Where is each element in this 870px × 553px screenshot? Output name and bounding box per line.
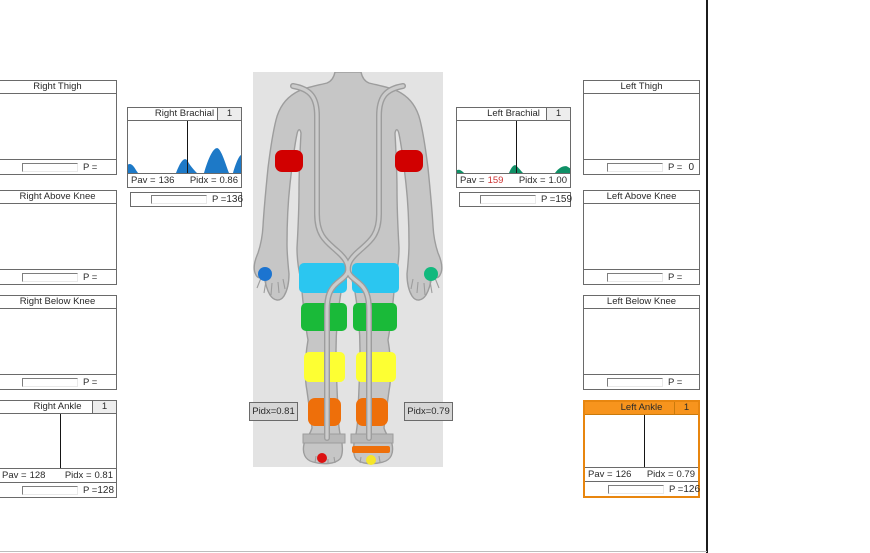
panel-title-label: Left Brachial (487, 108, 540, 119)
panel-title: Left Thigh (584, 81, 699, 94)
panel-title-label: Right Brachial (155, 108, 214, 119)
window-split-divider[interactable] (706, 0, 708, 553)
pressure-label: P = (83, 272, 97, 283)
pressure-label: P = (668, 272, 682, 283)
stats-row: Pav =126 Pidx =0.79 (585, 467, 698, 481)
left-hand-marker-dot[interactable] (424, 267, 438, 281)
pressure-label: P = (83, 377, 97, 388)
stats-row: Pav =136 Pidx =0.86 (128, 173, 241, 187)
pressure-bar (607, 378, 663, 387)
panel-left-brachial[interactable]: Left Brachial 1 Pav =159 Pidx =1.00 (456, 107, 571, 188)
left-below-knee-cuff[interactable] (356, 352, 396, 382)
doppler-waveform (457, 121, 570, 173)
stats-row: Pav =159 Pidx =1.00 (457, 173, 570, 187)
panel-title: Left Above Knee (584, 191, 699, 204)
panel-title: Left Brachial 1 (457, 108, 570, 121)
panel-left-below-knee[interactable]: Left Below Knee P = (583, 295, 700, 390)
pressure-bar (22, 163, 78, 172)
panel-title-label: Right Ankle (33, 401, 81, 412)
pressure-bar (22, 273, 78, 282)
stats-row: Pav =128 Pidx =0.81 (0, 468, 116, 482)
left-brachial-pressure-box: P = 159 (459, 192, 571, 207)
pav-label: Pav = (460, 175, 485, 186)
waveform-area (0, 309, 116, 374)
pressure-value: 128 (97, 485, 116, 496)
bottom-edge-line (0, 551, 707, 552)
pidx-label: Pidx = (519, 175, 546, 186)
pressure-value: 159 (555, 194, 574, 205)
pidx-value: 0.81 (95, 470, 114, 481)
panel-right-below-knee[interactable]: Right Below Knee P = (0, 295, 117, 390)
waveform-area (585, 415, 698, 467)
pav-value: 159 (488, 175, 504, 186)
measurement-count-badge: 1 (546, 108, 570, 120)
pressure-row: P = (0, 159, 116, 174)
left-ankle-pidx-tag: Pidx=0.79 (404, 402, 453, 421)
pav-label: Pav = (2, 470, 27, 481)
panel-title-label: Left Ankle (621, 402, 663, 413)
pressure-label: P = (541, 194, 555, 205)
pav-value: 136 (159, 175, 175, 186)
waveform-area (0, 414, 116, 468)
waveform-area (584, 309, 699, 374)
pidx-label: Pidx = (65, 470, 92, 481)
pressure-bar (480, 195, 536, 204)
panel-right-above-knee[interactable]: Right Above Knee P = (0, 190, 117, 285)
pidx-value: 0.79 (677, 469, 696, 480)
panel-right-ankle[interactable]: Right Ankle 1 Pav =128 Pidx =0.81 P = 12… (0, 400, 117, 498)
right-hand-marker-dot[interactable] (258, 267, 272, 281)
waveform-area (128, 121, 241, 173)
pav-value: 126 (616, 469, 632, 480)
pressure-label: P = (83, 485, 97, 496)
left-above-knee-cuff[interactable] (353, 303, 397, 331)
pressure-label: P = (669, 484, 683, 495)
waveform-area (0, 94, 116, 159)
pidx-label: Pidx = (190, 175, 217, 186)
pressure-row: P = 0 (584, 159, 699, 174)
pressure-bar (608, 485, 664, 494)
panel-title: Right Thigh (0, 81, 116, 94)
pidx-value: 1.00 (549, 175, 568, 186)
pressure-bar (22, 378, 78, 387)
waveform-cursor[interactable] (644, 415, 646, 467)
panel-left-thigh[interactable]: Left Thigh P = 0 (583, 80, 700, 175)
panel-left-above-knee[interactable]: Left Above Knee P = (583, 190, 700, 285)
pressure-row: P = 126 (585, 481, 698, 496)
panel-title: Right Below Knee (0, 296, 116, 309)
panel-title: Left Below Knee (584, 296, 699, 309)
pressure-bar (607, 163, 663, 172)
panel-right-brachial[interactable]: Right Brachial 1 Pav =136 Pidx =0.86 (127, 107, 242, 188)
pressure-bar (151, 195, 207, 204)
pressure-row: P = (584, 374, 699, 389)
pressure-label: P = (83, 162, 97, 173)
waveform-cursor[interactable] (187, 121, 189, 173)
pidx-value: 0.86 (220, 175, 239, 186)
pressure-value: 126 (683, 484, 702, 495)
pidx-label: Pidx = (647, 469, 674, 480)
pressure-label: P = (668, 162, 682, 173)
pressure-row: P = (0, 374, 116, 389)
pressure-row: P = 128 (0, 482, 116, 497)
measurement-count-badge: 1 (92, 401, 116, 413)
measurement-count-badge: 1 (217, 108, 241, 120)
right-ankle-pidx-tag: Pidx=0.81 (249, 402, 298, 421)
measurement-count-badge: 1 (674, 402, 698, 414)
waveform-cursor[interactable] (60, 414, 62, 468)
pav-value: 128 (30, 470, 46, 481)
left-foot-orange-band (352, 446, 390, 453)
pressure-row: P = (584, 269, 699, 284)
pressure-value: 0 (682, 162, 696, 173)
waveform-area (0, 204, 116, 269)
waveform-area (457, 121, 570, 173)
pressure-row: P = (0, 269, 116, 284)
pav-label: Pav = (131, 175, 156, 186)
panel-title: Left Ankle 1 (585, 402, 698, 415)
waveform-area (584, 94, 699, 159)
pressure-label: P = (212, 194, 226, 205)
left-foot-marker-dot[interactable] (366, 455, 376, 465)
pressure-bar (22, 486, 78, 495)
right-brachial-cuff[interactable] (275, 150, 303, 172)
pav-label: Pav = (588, 469, 613, 480)
doppler-waveform (128, 121, 241, 173)
panel-right-thigh[interactable]: Right Thigh P = (0, 80, 117, 175)
waveform-cursor[interactable] (516, 121, 518, 173)
left-thigh-cuff[interactable] (352, 263, 399, 293)
pressure-value: 136 (226, 194, 245, 205)
left-brachial-cuff[interactable] (395, 150, 423, 172)
pressure-bar (607, 273, 663, 282)
pressure-label: P = (668, 377, 682, 388)
screening-app-window: { "panels": { "right_thigh": { "title": … (0, 0, 870, 553)
waveform-area (584, 204, 699, 269)
hand-foot-detail-lines (257, 278, 439, 464)
panel-title: Right Brachial 1 (128, 108, 241, 121)
panel-title: Right Above Knee (0, 191, 116, 204)
panel-left-ankle-selected[interactable]: Left Ankle 1 Pav =126 Pidx =0.79 P = 126 (583, 400, 700, 498)
right-foot-marker-dot[interactable] (317, 453, 327, 463)
panel-title: Right Ankle 1 (0, 401, 116, 414)
right-brachial-pressure-box: P = 136 (130, 192, 242, 207)
